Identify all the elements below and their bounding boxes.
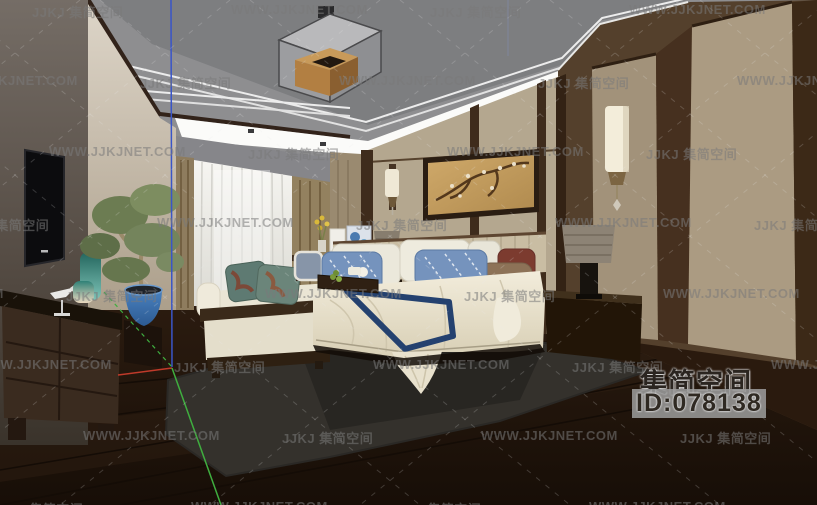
watermark-dash-lines	[0, 0, 817, 505]
bedroom-render: JJKJ 集简空间WWW.JJKJNET.COMJJKJ 集简空间WWW.JJK…	[0, 0, 817, 505]
brand-watermark-id: ID:078138	[632, 389, 766, 418]
